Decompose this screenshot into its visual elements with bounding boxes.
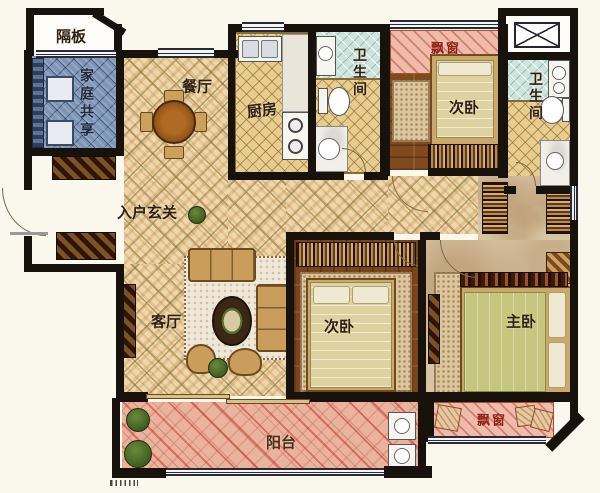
sliding-door (146, 394, 230, 399)
wall (498, 8, 578, 16)
wall (282, 24, 386, 32)
wall (294, 392, 424, 402)
room-label-master-bedroom: 主卧 (506, 311, 536, 332)
bed-pillow (438, 62, 492, 76)
vanity-basin-icon (552, 66, 566, 80)
room-label-bedroom-second-mid: 次卧 (324, 316, 354, 337)
room-label-dining: 餐厅 (182, 76, 212, 97)
wall (420, 232, 440, 240)
room-label-balcony: 阳台 (266, 432, 296, 453)
window (158, 48, 214, 58)
room-label-living: 客厅 (151, 311, 181, 332)
window-blind (32, 58, 44, 148)
floor-hallway (286, 180, 390, 234)
plant-icon (208, 358, 228, 378)
wall (116, 264, 124, 400)
stove-burner-icon (288, 139, 303, 154)
bed-master-blanket (464, 292, 546, 392)
wall (380, 24, 390, 78)
toilet-bowl-icon (328, 87, 350, 116)
family-seat (46, 76, 74, 102)
washer-drum-icon (394, 448, 410, 464)
floor-plan: 隔板 家庭共享 餐厅 厨房 卫生间 飘窗 次卧 卫生间 入户玄关 客厅 次卧 主… (0, 0, 600, 493)
wall (380, 76, 390, 176)
duct-shaft-icon (514, 22, 560, 48)
sink-basin (242, 40, 259, 58)
wall (116, 392, 148, 402)
wall (536, 186, 572, 194)
floor-foyer-dining (124, 58, 228, 264)
wall (500, 52, 572, 60)
coffee-table (212, 296, 252, 346)
room-label-bay-window-top: 飘窗 (431, 38, 461, 57)
sink-basin (261, 40, 278, 58)
room-label-bedroom-second-top: 次卧 (449, 97, 479, 118)
wall (570, 8, 578, 186)
wall (112, 398, 120, 478)
wall (504, 186, 516, 194)
wall (26, 8, 34, 56)
room-label-bath-common: 卫生间 (349, 48, 369, 99)
window (570, 186, 578, 220)
room-label-bay-window-master: 飘窗 (477, 410, 507, 429)
room-label-foyer: 入户玄关 (117, 202, 177, 223)
room-label-family-share: 家庭共享 (76, 68, 96, 140)
bed-pillow (352, 286, 389, 304)
kitchen-counter (282, 34, 310, 112)
shower-basin-icon (318, 138, 340, 160)
balcony-plant-icon (124, 440, 152, 468)
wall (116, 50, 160, 58)
wall (286, 232, 294, 404)
wall (428, 168, 502, 176)
rug-bedroom-top (392, 80, 430, 142)
wall (24, 50, 32, 190)
scale-ruler (110, 480, 138, 486)
entry-door-leaf (10, 232, 48, 235)
bed-pillow (548, 342, 566, 388)
wall (24, 148, 116, 156)
wall (286, 232, 394, 240)
stove-burner-icon (288, 118, 303, 133)
foyer-cabinet (52, 156, 116, 180)
door-arc (2, 188, 46, 236)
room-label-partition: 隔板 (56, 26, 86, 47)
bench (428, 294, 440, 364)
tv-cabinet (122, 284, 136, 358)
sofa-main (188, 248, 256, 282)
window (242, 22, 284, 32)
window (166, 468, 384, 476)
wall (116, 50, 124, 156)
bed-pillow (313, 286, 350, 304)
dining-chair (164, 146, 184, 159)
bed-pillow (548, 292, 566, 338)
wall (24, 264, 124, 272)
wall (228, 32, 235, 180)
laundry-basin-icon (394, 418, 410, 434)
wall (228, 172, 344, 180)
shower-basin-icon (546, 152, 564, 170)
dining-table (152, 100, 196, 144)
toilet-tank-icon (318, 88, 328, 114)
wall (112, 468, 166, 478)
window (390, 20, 498, 29)
armchair (228, 348, 262, 376)
plant-icon (188, 206, 206, 224)
foyer-cabinet (56, 232, 116, 260)
window (428, 436, 546, 444)
wardrobe-bedroom-top (428, 144, 500, 170)
balcony-plant-icon (126, 408, 150, 432)
vanity-basin-icon (318, 46, 333, 61)
wall (498, 76, 508, 178)
sliding-door (226, 399, 310, 404)
window (36, 50, 116, 58)
room-label-kitchen: 厨房 (246, 98, 278, 123)
sofa-side (256, 284, 290, 352)
bay-cushion (434, 404, 462, 432)
vanity-basin-icon (553, 82, 565, 94)
family-seat (46, 120, 74, 146)
wall (424, 392, 574, 402)
room-label-bath-master: 卫生间 (525, 72, 545, 123)
wall (308, 28, 316, 176)
